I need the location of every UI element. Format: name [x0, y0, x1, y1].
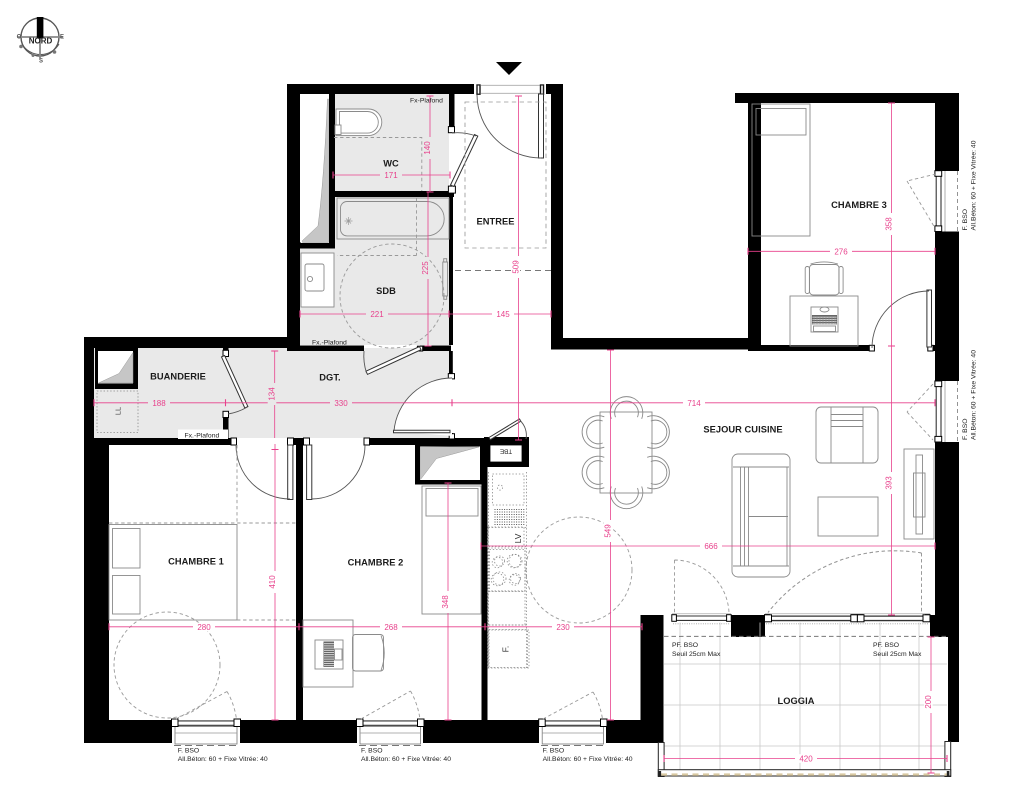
svg-text:330: 330	[334, 399, 348, 408]
svg-text:509: 509	[512, 260, 521, 274]
svg-text:O: O	[17, 35, 22, 41]
svg-text:348: 348	[441, 595, 450, 609]
svg-text:Fx.-Plafond: Fx.-Plafond	[312, 340, 347, 347]
svg-text:Fx.-Plafond: Fx.-Plafond	[185, 433, 220, 440]
svg-text:276: 276	[834, 247, 848, 256]
svg-text:200: 200	[924, 695, 933, 709]
svg-text:666: 666	[704, 542, 718, 551]
svg-text:BUANDERIE: BUANDERIE	[150, 372, 206, 382]
svg-text:CHAMBRE 2: CHAMBRE 2	[348, 558, 404, 568]
svg-text:PF. BSO: PF. BSO	[672, 642, 698, 649]
svg-text:188: 188	[152, 399, 166, 408]
svg-text:420: 420	[799, 755, 813, 764]
svg-text:145: 145	[496, 310, 510, 319]
svg-text:DGT.: DGT.	[319, 373, 340, 383]
svg-text:E: E	[60, 35, 64, 41]
svg-text:230: 230	[556, 623, 570, 632]
svg-text:F. BSO: F. BSO	[962, 418, 969, 440]
svg-text:SEJOUR CUISINE: SEJOUR CUISINE	[703, 425, 782, 435]
svg-text:221: 221	[370, 310, 384, 319]
svg-text:410: 410	[268, 575, 277, 589]
svg-text:358: 358	[885, 217, 894, 231]
svg-text:393: 393	[885, 476, 894, 490]
svg-text:225: 225	[421, 261, 430, 275]
svg-text:549: 549	[604, 524, 613, 538]
svg-text:All.Béton: 60 + Fixe Vitrée: 4: All.Béton: 60 + Fixe Vitrée: 40	[971, 140, 978, 230]
svg-text:CHAMBRE 1: CHAMBRE 1	[168, 557, 224, 567]
svg-text:ENTREE: ENTREE	[476, 217, 514, 227]
svg-text:Seuil 25cm Max: Seuil 25cm Max	[873, 651, 922, 658]
svg-text:F. BSO: F. BSO	[178, 748, 200, 755]
svg-text:LOGGIA: LOGGIA	[778, 696, 815, 706]
svg-text:F. BSO: F. BSO	[543, 748, 565, 755]
svg-text:WC: WC	[383, 159, 399, 169]
svg-text:F.: F.	[501, 646, 511, 653]
svg-text:F. BSO: F. BSO	[361, 748, 383, 755]
svg-text:280: 280	[197, 623, 211, 632]
svg-text:LL: LL	[114, 407, 123, 415]
svg-text:TBE: TBE	[500, 448, 512, 455]
svg-text:NORD: NORD	[29, 37, 53, 46]
svg-text:All.Béton: 60 + Fixe Vitrée: 4: All.Béton: 60 + Fixe Vitrée: 40	[971, 350, 978, 440]
svg-text:CHAMBRE 3: CHAMBRE 3	[831, 200, 887, 210]
svg-text:Seuil 25cm Max: Seuil 25cm Max	[672, 651, 721, 658]
svg-text:SDB: SDB	[376, 286, 396, 296]
svg-text:S: S	[39, 59, 43, 65]
svg-text:F. BSO: F. BSO	[962, 209, 969, 231]
svg-text:Fx-Plafond: Fx-Plafond	[410, 98, 443, 105]
svg-text:134: 134	[268, 387, 277, 401]
svg-text:All.Béton: 60 + Fixe Vitrée: 4: All.Béton: 60 + Fixe Vitrée: 40	[543, 756, 633, 763]
svg-text:714: 714	[687, 399, 701, 408]
svg-text:140: 140	[423, 141, 432, 155]
svg-text:All.Béton: 60 + Fixe Vitrée: 4: All.Béton: 60 + Fixe Vitrée: 40	[178, 756, 268, 763]
svg-text:171: 171	[384, 171, 398, 180]
svg-text:PF. BSO: PF. BSO	[873, 642, 899, 649]
svg-text:268: 268	[384, 623, 398, 632]
svg-text:LV: LV	[513, 533, 523, 543]
svg-text:All.Béton: 60 + Fixe Vitrée: 4: All.Béton: 60 + Fixe Vitrée: 40	[361, 756, 451, 763]
